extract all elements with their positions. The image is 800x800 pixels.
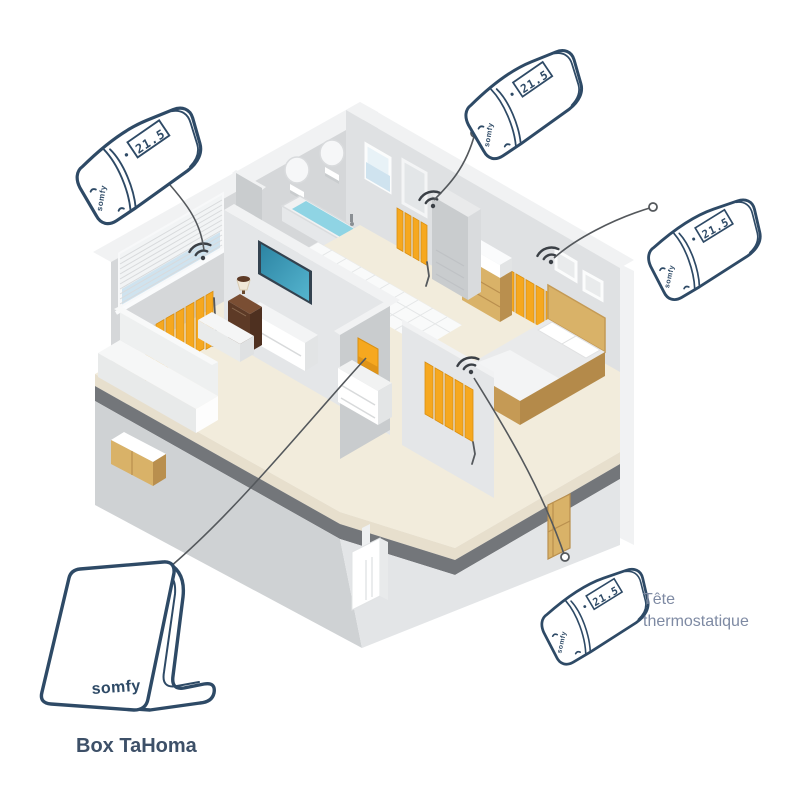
- stair-block: [432, 188, 481, 300]
- thermostatic-head-right: 21.5 somfy: [640, 197, 775, 305]
- isometric-scene: 21.5 somfy 21.5 somfy 21.5 somfy 21.5 so…: [0, 0, 800, 800]
- right-wall-edge: [620, 264, 634, 545]
- thermostatic-head-label: Tête thermostatique: [643, 591, 749, 630]
- svg-text:thermostatique: thermostatique: [643, 613, 749, 630]
- tahoma-box: somfy: [41, 562, 214, 710]
- basement-door: [548, 494, 570, 559]
- somfy-logo: somfy: [91, 678, 141, 698]
- thermostatic-head-top-center: 21.5 somfy: [455, 47, 597, 164]
- box-tahoma-label: Box TaHoma: [76, 735, 198, 757]
- smart-home-diagram: 21.5 somfy 21.5 somfy 21.5 somfy 21.5 so…: [0, 0, 800, 800]
- svg-text:Tête: Tête: [643, 591, 675, 608]
